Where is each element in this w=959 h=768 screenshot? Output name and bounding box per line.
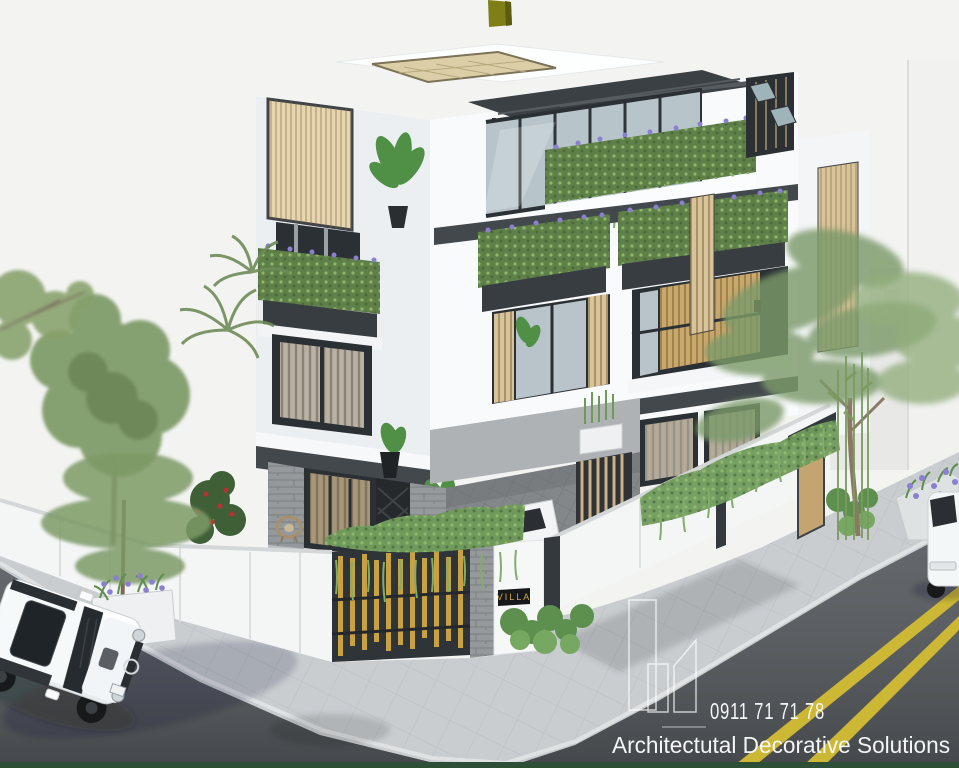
van-windshield xyxy=(930,495,957,527)
architectural-render-scene: VILLA xyxy=(0,0,959,768)
louver-screen-panel xyxy=(268,99,352,230)
wood-slat-column xyxy=(690,194,714,335)
watermark-phone: 0911 71 71 78 xyxy=(710,698,825,724)
villa-sign-text: VILLA xyxy=(497,592,532,602)
watermark-company: Architectutal Decorative Solutions xyxy=(612,732,950,758)
olive-banner xyxy=(488,0,512,27)
bottom-green-strip xyxy=(0,762,959,768)
top-right-windows xyxy=(746,72,796,158)
left-bay-window xyxy=(272,334,372,436)
white-van xyxy=(927,492,959,598)
